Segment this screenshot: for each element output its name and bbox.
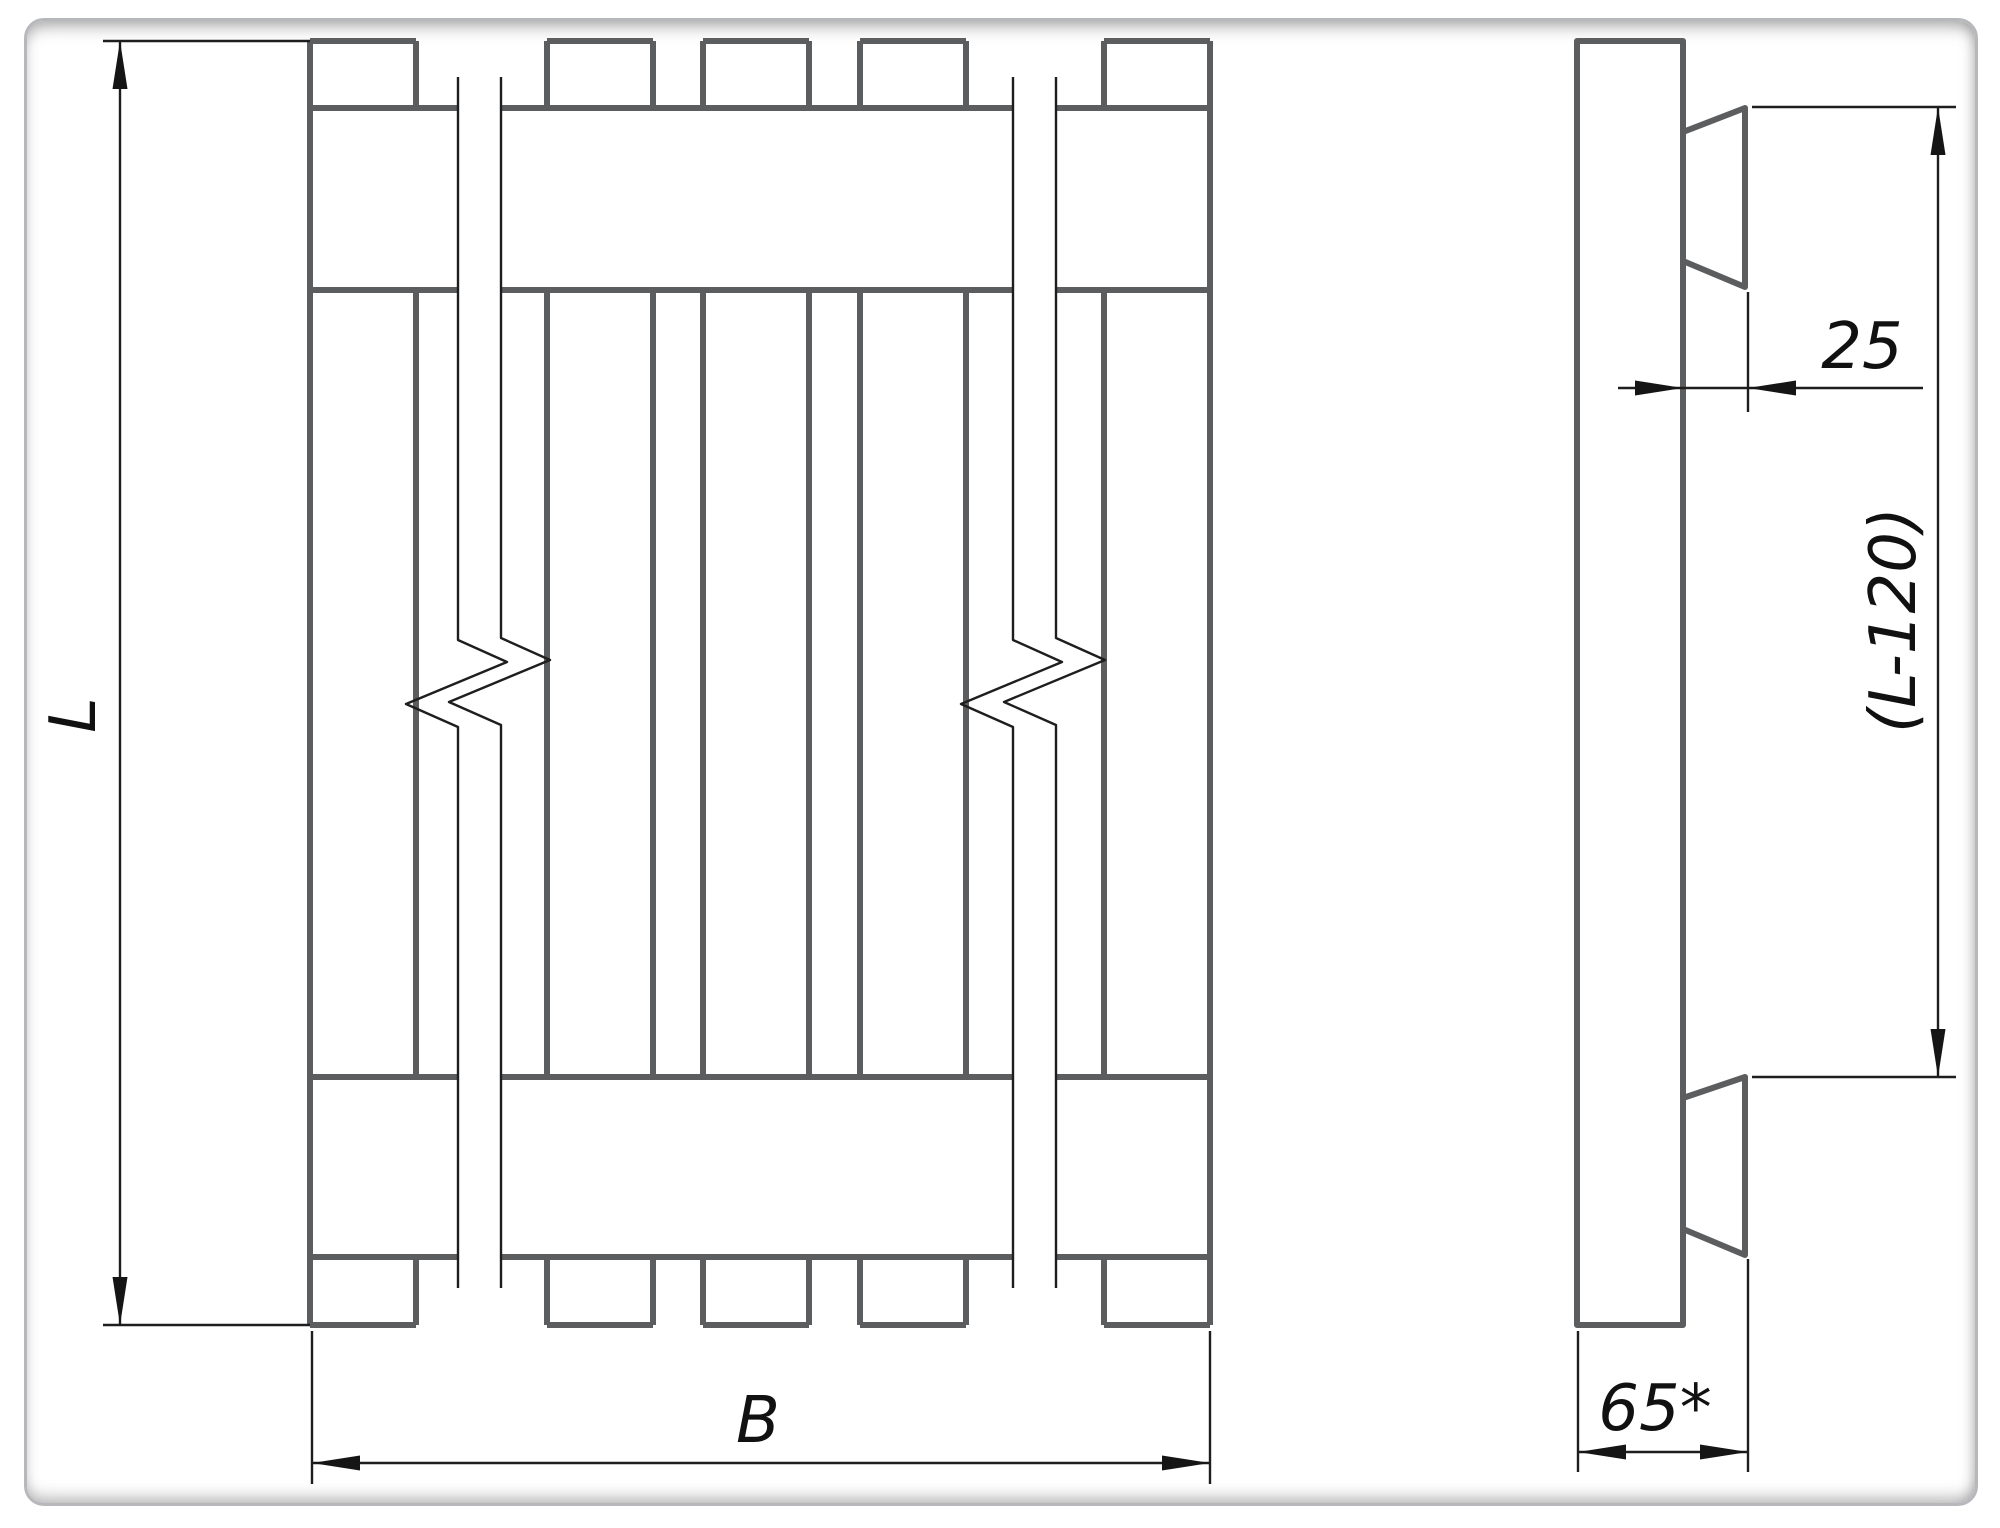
arrowhead-right-tip <box>1635 381 1683 396</box>
dim-label-B: B <box>736 1384 780 1458</box>
dimension-side-depth: 65* <box>1578 1259 1748 1472</box>
front-view <box>310 41 1210 1325</box>
arrowhead-up <box>113 41 128 89</box>
arrowhead-right <box>1700 1445 1748 1460</box>
top-cross-board-profile <box>1683 108 1745 287</box>
arrowhead-down <box>113 1277 128 1325</box>
dim-label-65: 65* <box>1598 1372 1711 1446</box>
arrowhead-right <box>1162 1456 1210 1471</box>
break-lines-left <box>406 77 550 1288</box>
break-line <box>1004 77 1105 1288</box>
arrowhead-left-tip <box>1748 381 1796 396</box>
arrowhead-up <box>1931 107 1946 155</box>
side-stringer-board <box>1577 41 1683 1325</box>
break-line <box>406 77 507 1288</box>
bottom-cross-board-profile <box>1683 1077 1745 1255</box>
dimension-inner-length: (L-120) <box>1752 107 1956 1077</box>
side-view <box>1577 41 1745 1325</box>
arrowhead-left <box>312 1456 360 1471</box>
break-line <box>449 77 550 1288</box>
break-lines-right <box>961 77 1105 1288</box>
dimension-width: B <box>312 1331 1210 1484</box>
dim-label-L120: (L-120) <box>1857 507 1931 733</box>
arrowhead-left <box>1578 1445 1626 1460</box>
dim-label-25: 25 <box>1821 310 1902 384</box>
pallet-drawing: L B 25 (L-120) <box>0 0 2000 1528</box>
arrowhead-down <box>1931 1029 1946 1077</box>
drawing-page: L B 25 (L-120) <box>0 0 2000 1528</box>
dimension-length: L <box>37 41 310 1325</box>
board-vertical-edges <box>416 41 1104 1325</box>
break-line <box>961 77 1062 1288</box>
dim-label-L: L <box>37 697 111 733</box>
dimension-cleat-thickness: 25 <box>1618 292 1923 412</box>
